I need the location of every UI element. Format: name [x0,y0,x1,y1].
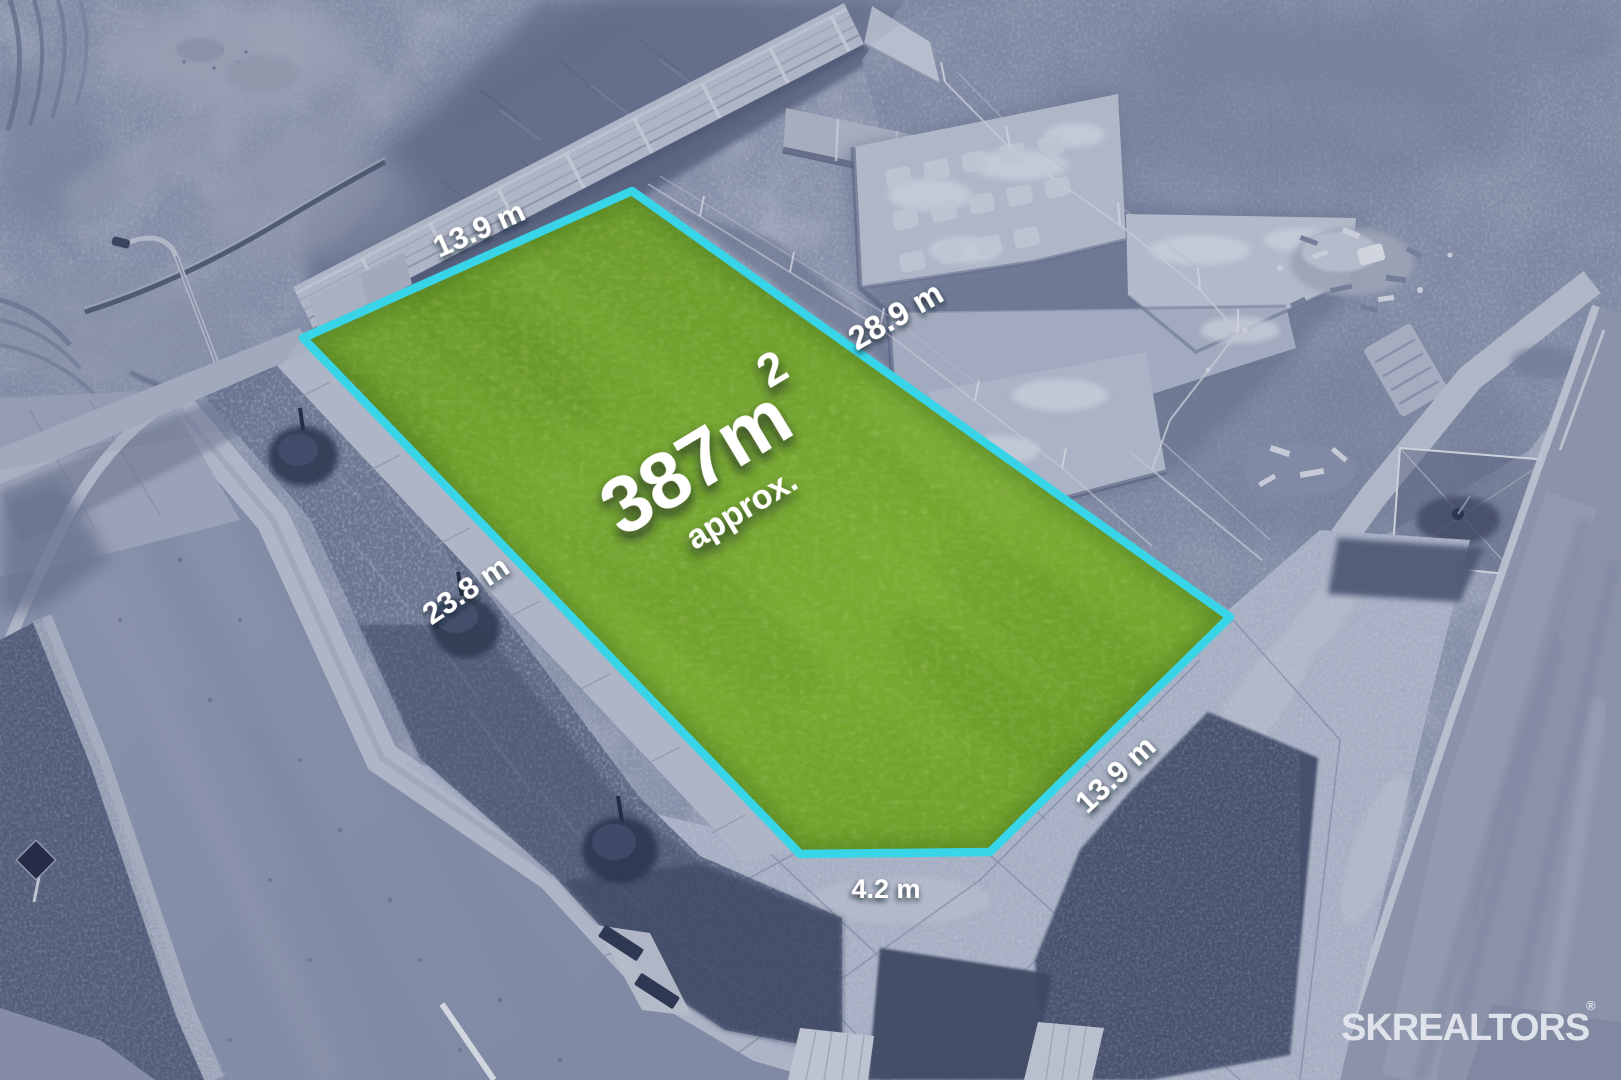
svg-text:SKREALTORS: SKREALTORS [1341,1007,1589,1049]
svg-text:®: ® [1586,998,1596,1013]
svg-text:4.2 m: 4.2 m [851,874,920,904]
